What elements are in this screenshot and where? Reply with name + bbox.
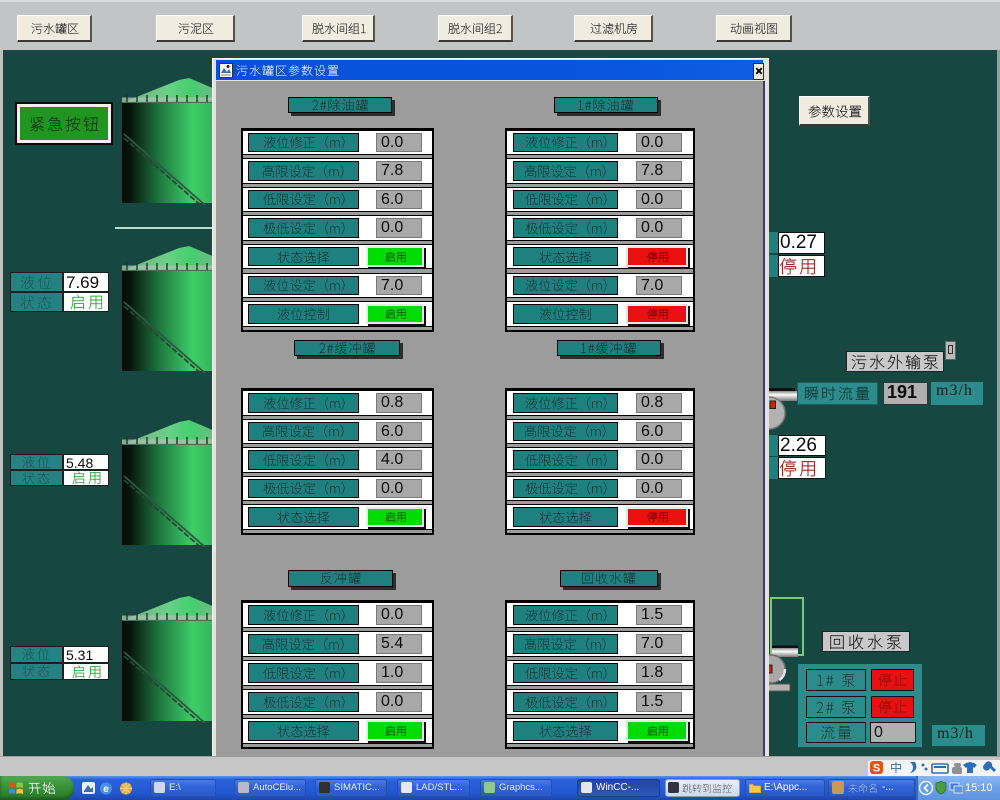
svg-text:S: S [873,762,880,774]
svg-text:e: e [103,784,109,795]
